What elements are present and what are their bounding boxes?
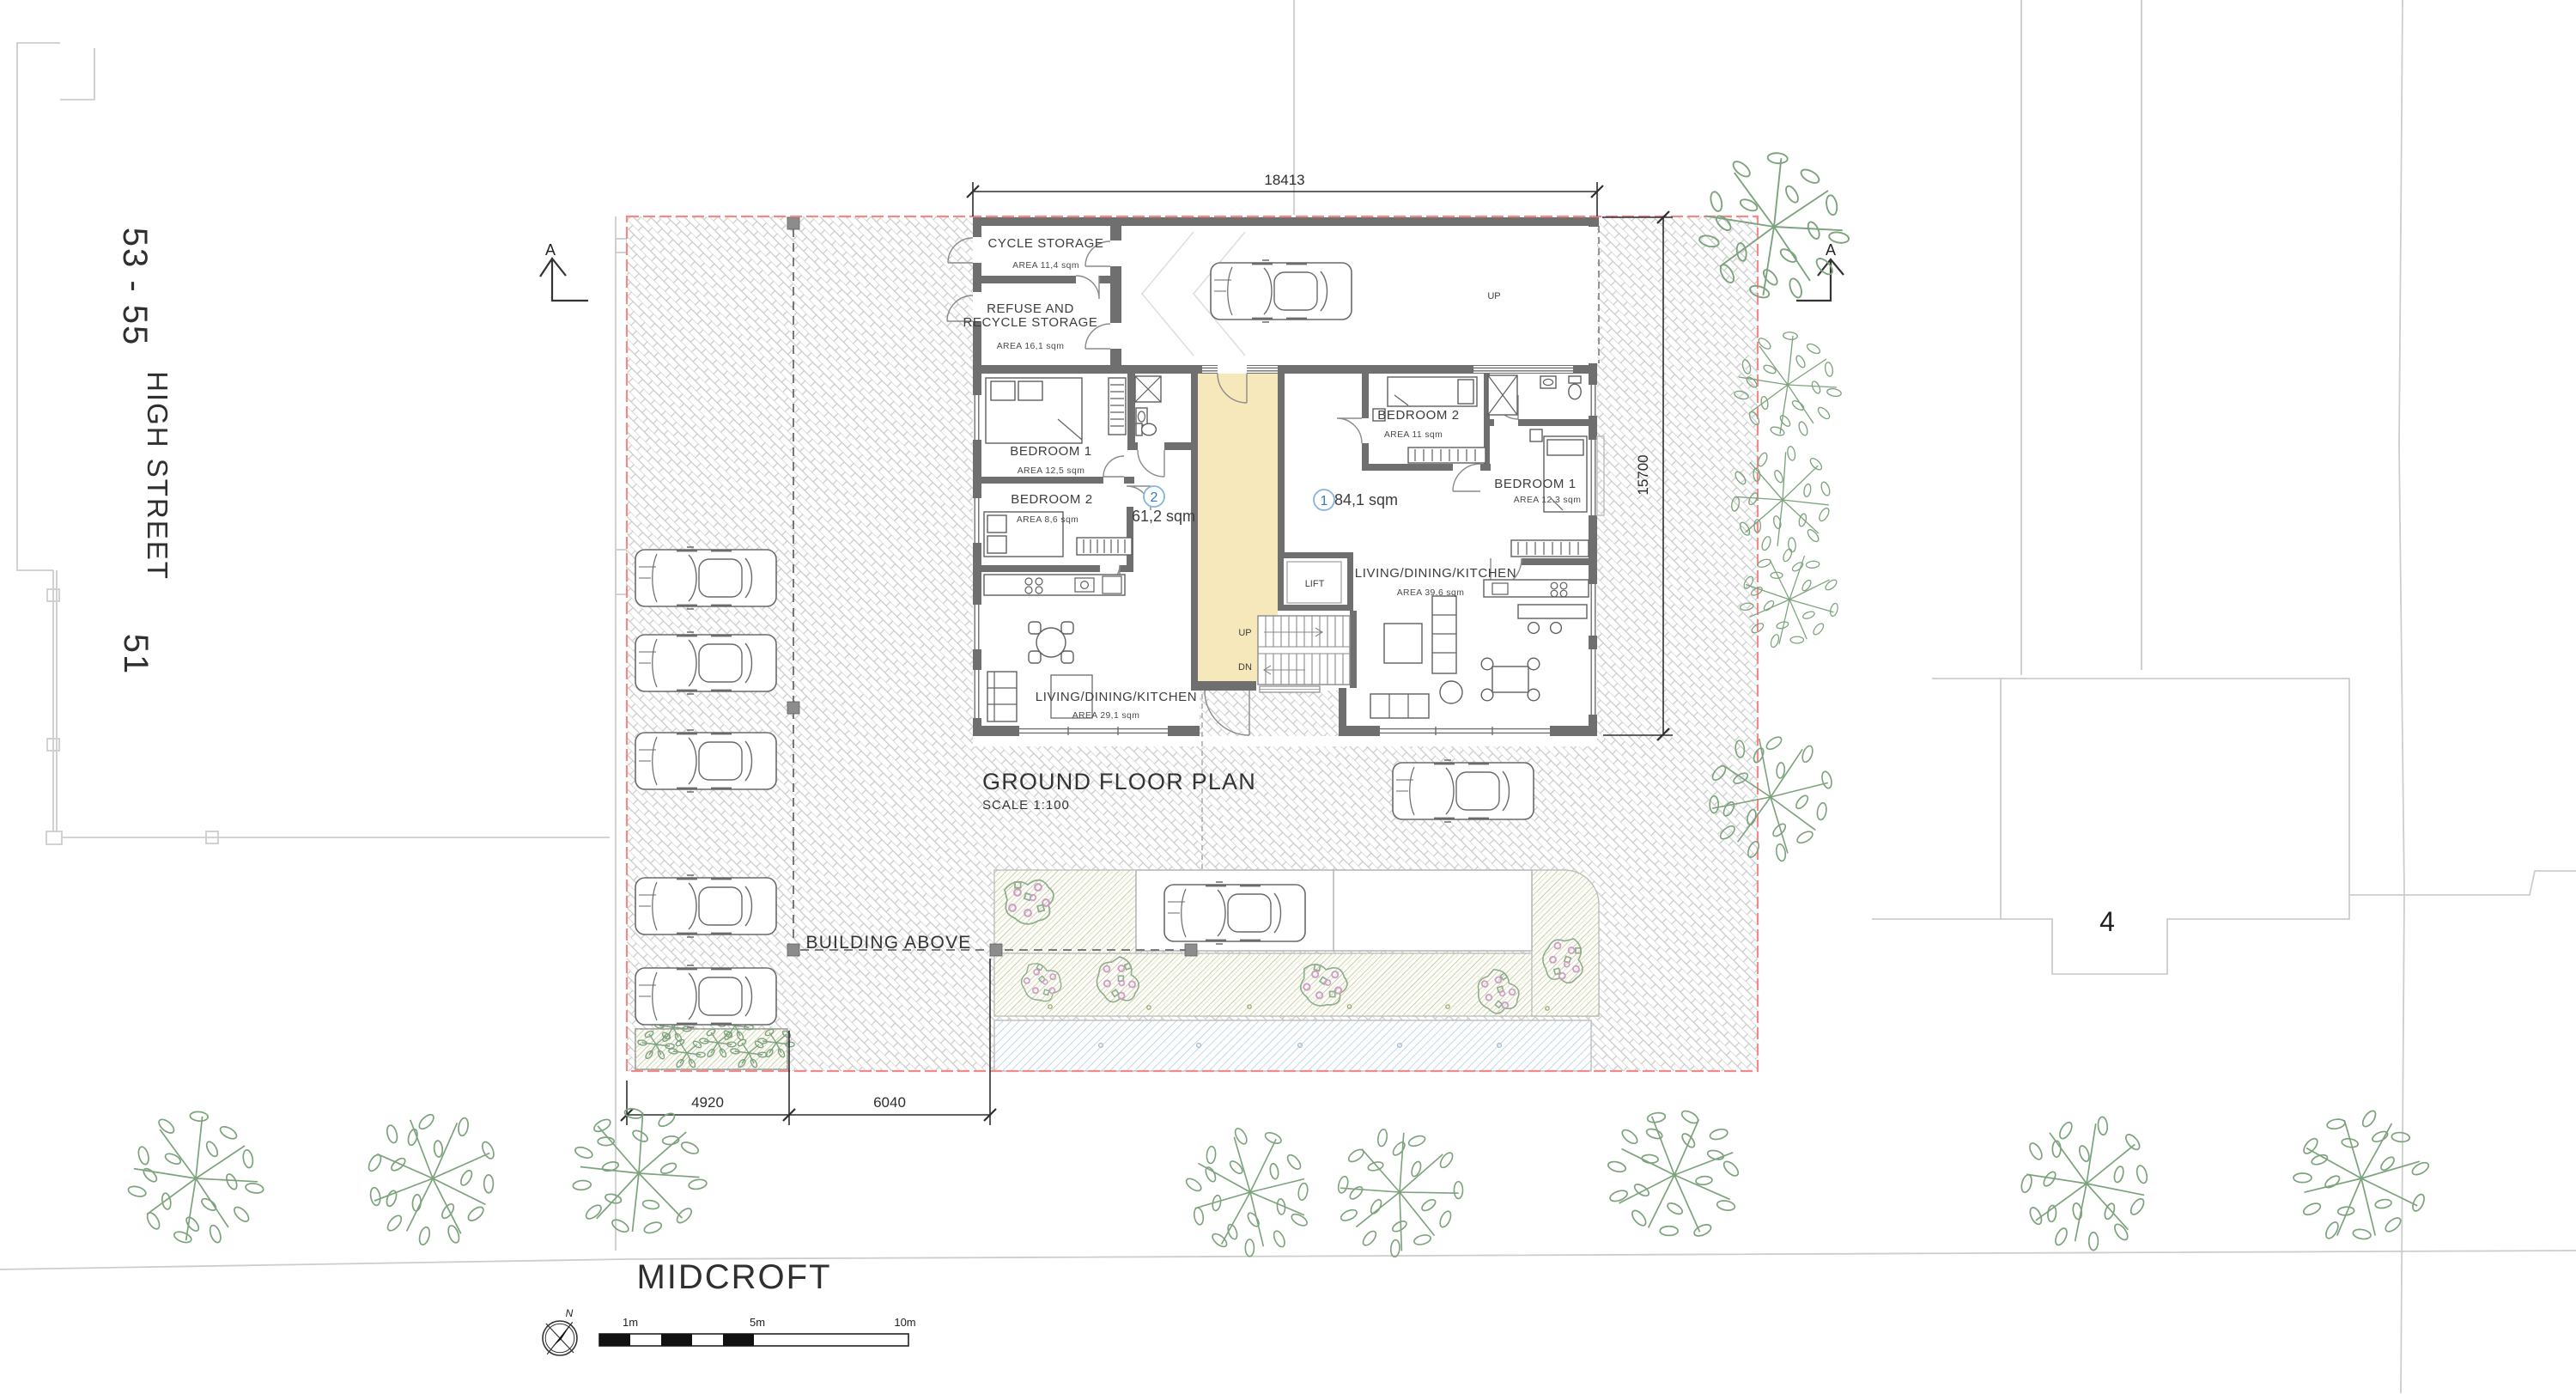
car-in-garage	[1211, 260, 1352, 322]
scale-bar-10m: 10m	[894, 1316, 915, 1329]
refuse-label-2: RECYCLE STORAGE	[963, 315, 1097, 330]
scale-bar: 1m 5m 10m	[599, 1316, 916, 1346]
tree	[2275, 1092, 2448, 1266]
flat1-bedroom2-area: AREA 11 sqm	[1384, 430, 1443, 440]
building-ground-floor: CYCLE STORAGE AREA 11,4 sqm REFUSE AND R…	[947, 217, 1604, 746]
dimension-top: 18413	[967, 172, 1603, 216]
section-marker-left: A	[540, 241, 588, 301]
tree	[1332, 1122, 1469, 1262]
car	[635, 965, 776, 1027]
lift-label: LIFT	[1305, 579, 1325, 589]
label-high-street: HIGH STREET	[142, 371, 173, 581]
tree	[1168, 1110, 1333, 1273]
north-arrow: N	[543, 1307, 577, 1355]
dimension-right-value: 15700	[1635, 454, 1651, 495]
flat1-bedroom1-area: AREA 12.3 sqm	[1514, 496, 1582, 505]
site-plan-drawing: CYCLE STORAGE AREA 11,4 sqm REFUSE AND R…	[0, 0, 2576, 1394]
tree	[1991, 1087, 2183, 1279]
building-above-label: BUILDING ABOVE	[805, 933, 971, 953]
garage-up-label: UP	[1487, 291, 1500, 301]
label-neighbor-4: 4	[2099, 906, 2115, 937]
car	[1393, 760, 1534, 822]
north-label: N	[566, 1307, 574, 1319]
dimension-bottom-right-value: 6040	[873, 1094, 906, 1111]
label-53-55: 53 - 55	[116, 228, 154, 347]
tree	[341, 1086, 525, 1271]
label-51: 51	[117, 634, 155, 676]
plan-title: GROUND FLOOR PLAN	[982, 769, 1256, 794]
flat2-number: 2	[1151, 490, 1158, 505]
cycle-storage-label: CYCLE STORAGE	[987, 236, 1103, 251]
car	[635, 875, 776, 937]
plan-scale: SCALE 1:100	[982, 798, 1070, 813]
flat1-number: 1	[1321, 494, 1328, 508]
car	[635, 730, 776, 792]
scale-bar-1m: 1m	[623, 1316, 638, 1329]
tree	[1583, 1083, 1768, 1267]
flat1-bedroom1-label: BEDROOM 1	[1494, 477, 1576, 491]
car	[1164, 882, 1305, 944]
refuse-area: AREA 16,1 sqm	[997, 342, 1065, 351]
flat2-bedroom1-area: AREA 12,5 sqm	[1018, 466, 1085, 476]
flat2-living-label: LIVING/DINING/KITCHEN	[1036, 690, 1197, 704]
dimension-bottom-left-value: 4920	[691, 1094, 724, 1111]
car	[635, 547, 776, 609]
car	[635, 632, 776, 694]
stairs-dn-label: DN	[1238, 662, 1252, 673]
stairs-up-label: UP	[1238, 628, 1251, 638]
label-midcroft: MIDCROFT	[636, 1258, 831, 1296]
water-feature	[994, 1020, 1591, 1071]
flat2-bedroom1-label: BEDROOM 1	[1010, 444, 1091, 459]
stairs	[1258, 616, 1350, 692]
refuse-label-1: REFUSE AND	[987, 301, 1074, 316]
site-plan-page: CYCLE STORAGE AREA 11,4 sqm REFUSE AND R…	[0, 0, 2576, 1394]
section-marker-right-label: A	[1826, 241, 1836, 259]
flat2-total-area: 61,2 sqm	[1132, 508, 1195, 525]
flat1-total-area: 84,1 sqm	[1334, 491, 1398, 508]
tree	[127, 1111, 264, 1245]
cycle-storage-area: AREA 11,4 sqm	[1012, 261, 1079, 271]
section-marker-left-label: A	[545, 241, 556, 259]
flat2-living-area: AREA 29,1 sqm	[1072, 711, 1140, 721]
dimension-top-value: 18413	[1264, 172, 1304, 188]
flat2-bedroom2-label: BEDROOM 2	[1011, 492, 1092, 507]
scale-bar-5m: 5m	[750, 1316, 765, 1329]
flat1-living-area: AREA 39.6 sqm	[1397, 588, 1465, 598]
flat2-bedroom2-area: AREA 8,6 sqm	[1017, 515, 1078, 525]
flat1-badge: 1 84,1 sqm	[1314, 490, 1398, 510]
flat1-bedroom2-label: BEDROOM 2	[1377, 408, 1459, 423]
flat1-living-label: LIVING/DINING/KITCHEN	[1355, 566, 1516, 581]
